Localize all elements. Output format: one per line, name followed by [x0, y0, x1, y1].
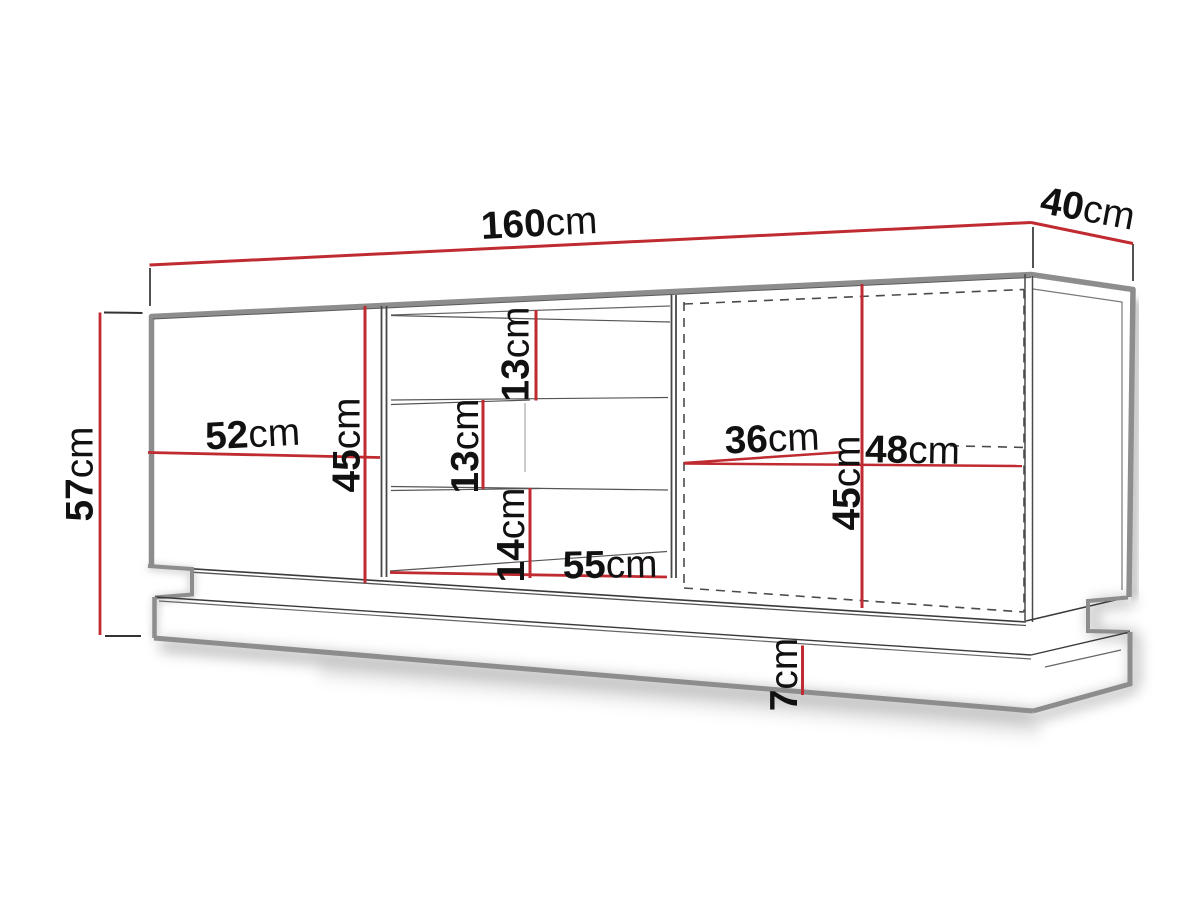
svg-text:13cm: 13cm [444, 399, 487, 494]
svg-text:13cm: 13cm [495, 307, 538, 402]
svg-text:14cm: 14cm [490, 488, 533, 583]
svg-text:52cm: 52cm [204, 411, 301, 459]
svg-text:45cm: 45cm [826, 436, 869, 531]
svg-text:160cm: 160cm [480, 199, 599, 248]
svg-text:57cm: 57cm [59, 427, 102, 522]
svg-text:45cm: 45cm [326, 398, 369, 493]
svg-text:48cm: 48cm [865, 428, 961, 473]
svg-text:7cm: 7cm [763, 638, 806, 711]
svg-text:55cm: 55cm [562, 543, 658, 588]
svg-text:36cm: 36cm [724, 415, 821, 462]
